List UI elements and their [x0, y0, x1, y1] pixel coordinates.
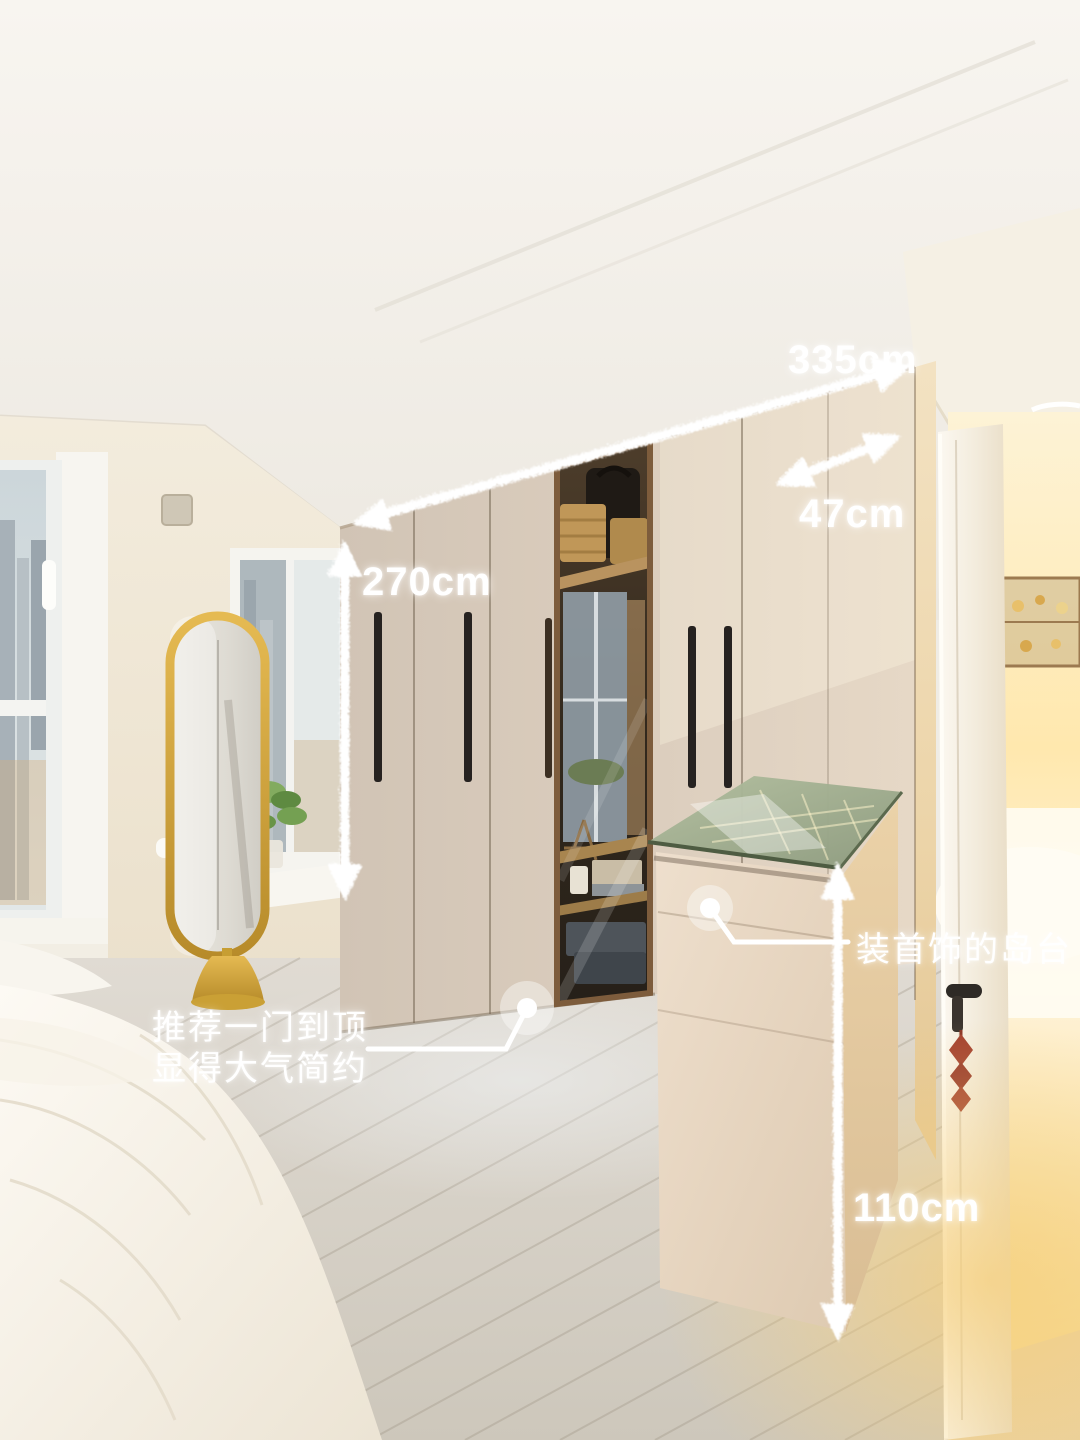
measurement-label-width: 335cm — [788, 338, 918, 383]
island-note: 装首饰的岛台 — [856, 922, 1072, 971]
measurement-label-depth: 47cm — [799, 492, 905, 537]
door-tip-note: 推荐一门到顶 显得大气简约 — [140, 1008, 380, 1091]
door-tip-line2: 显得大气简约 — [140, 1049, 380, 1090]
callout-dot — [700, 898, 720, 918]
callout-dot — [517, 998, 537, 1018]
annotated-bedroom-photo: 335cm 47cm 270cm 110cm 推荐一门到顶 显得大气简约 装首饰… — [0, 0, 1080, 1440]
callout-door-tip — [368, 981, 554, 1049]
arrow-height-270cm — [327, 540, 359, 897]
arrow-depth-47cm — [775, 433, 898, 484]
measurement-label-height: 270cm — [362, 560, 492, 605]
arrow-island-height-110cm — [820, 862, 852, 1338]
door-tip-line1: 推荐一门到顶 — [140, 1008, 380, 1049]
measurement-label-island-height: 110cm — [853, 1186, 980, 1231]
